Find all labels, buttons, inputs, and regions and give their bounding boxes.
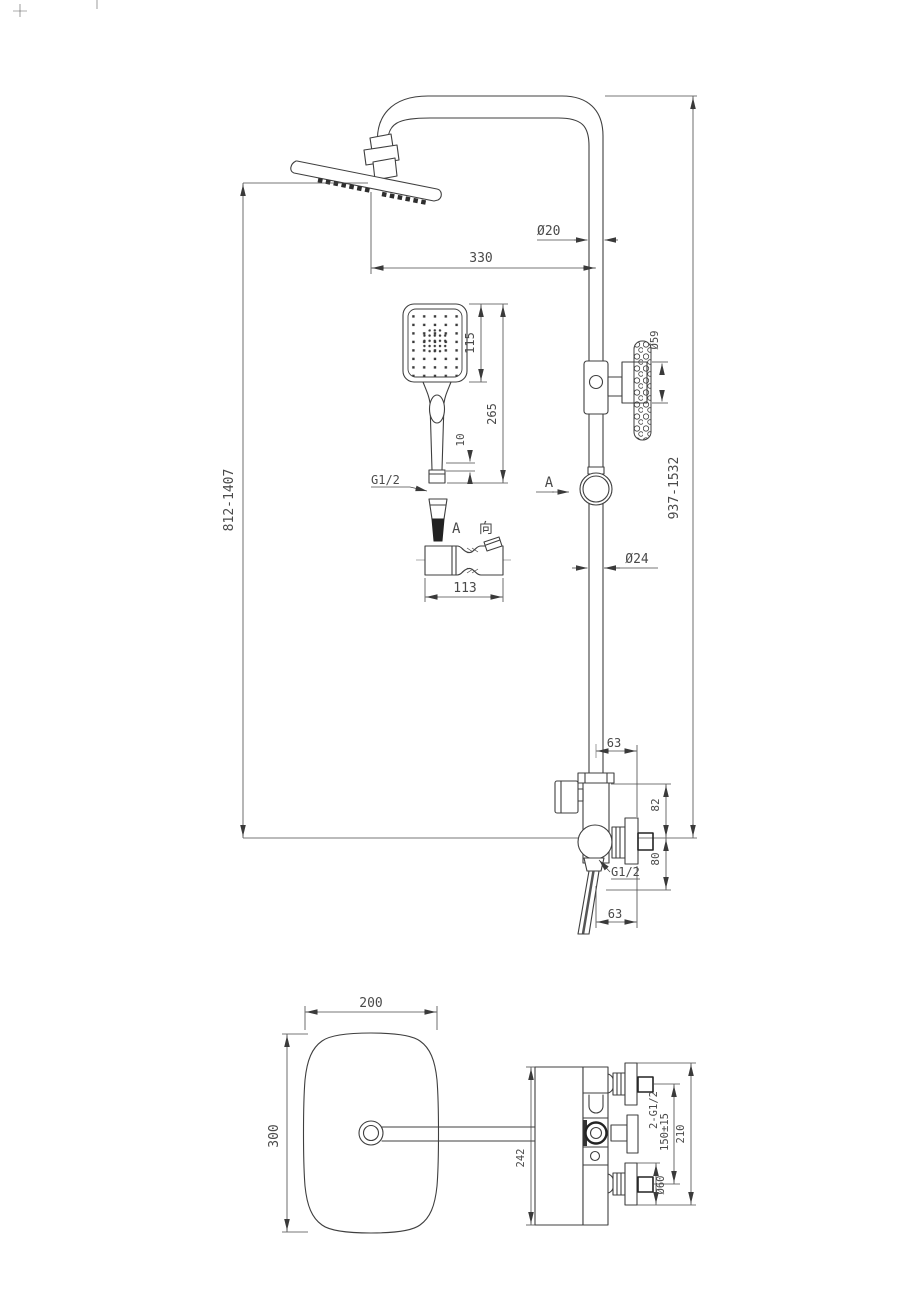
top-offset-label: 63 <box>607 736 621 750</box>
dim-body-span-242: 242 <box>515 1067 535 1225</box>
head-width-label: 200 <box>359 996 382 1011</box>
dim-knob-dia-59: Ø59 <box>649 331 668 403</box>
mixer-valve <box>555 773 653 934</box>
lower-height-label: 80 <box>649 852 662 865</box>
head-depth-label: 300 <box>267 1124 282 1147</box>
hand-shower <box>403 304 467 483</box>
height-range-right-label: 937-1532 <box>667 457 682 520</box>
view-a-marker: A <box>536 475 569 492</box>
dim-hand-nut-10: 10 <box>446 433 475 482</box>
riser-pipe <box>589 136 603 773</box>
dim-head-width-200: 200 <box>305 996 437 1030</box>
dim-pipe-dia-20: Ø20 <box>537 224 618 240</box>
hand-total-len-label: 265 <box>485 403 499 425</box>
plan-mixer-body <box>535 1063 653 1225</box>
dim-head-depth-300: 300 <box>267 1034 308 1232</box>
plan-inlet-top <box>608 1063 653 1105</box>
diverter-knob <box>584 341 651 440</box>
dim-height-left: 812-1407 <box>222 183 368 838</box>
front-view: 812-1407 937-1532 Ø20 330 <box>222 96 697 934</box>
hand-nut-len-label: 10 <box>454 433 467 446</box>
shower-arm <box>377 96 603 148</box>
plan-view: 200 300 <box>267 996 696 1233</box>
knob-dia-label: Ø59 <box>649 331 661 350</box>
hand-head-len-label: 115 <box>463 332 477 354</box>
dim-pipe-dia-24: Ø24 <box>572 552 658 568</box>
bracket-width-label: 113 <box>453 581 476 596</box>
hand-thread-label: G1/2 <box>371 473 400 487</box>
dim-arm-reach-330: 330 <box>371 192 596 274</box>
rain-shower-head <box>291 134 441 203</box>
dim-flange-dia-60: Ø60 <box>637 1163 667 1205</box>
detail-title: A 向 <box>452 521 498 537</box>
slider-holder <box>580 467 612 505</box>
view-a-label: A <box>545 475 554 491</box>
plan-inlet-bottom <box>608 1163 653 1205</box>
overall-span-label: 210 <box>675 1125 687 1144</box>
wall-mount <box>612 818 653 864</box>
outlet-thread-label: G1/2 <box>611 865 640 879</box>
shower-system-technical-drawing: 812-1407 937-1532 Ø20 330 <box>0 0 919 1300</box>
inlet-spacing-label: 150±15 <box>659 1113 671 1151</box>
height-range-left-label: 812-1407 <box>222 469 237 532</box>
dim-height-right: 937-1532 <box>605 96 697 838</box>
flange-dia-label: Ø60 <box>655 1176 667 1195</box>
body-span-label: 242 <box>515 1149 527 1168</box>
bottom-offset-label: 63 <box>608 907 622 921</box>
dim-bracket-113: 113 <box>425 578 503 602</box>
page-frame-marks <box>13 0 97 17</box>
arm-reach-label: 330 <box>469 251 492 266</box>
dim-hand-thread: G1/2 <box>371 473 427 491</box>
pipe-dia-20-label: Ø20 <box>537 224 560 239</box>
pipe-dia-24-label: Ø24 <box>625 552 649 567</box>
upper-height-label: 82 <box>649 798 662 811</box>
hose-connector <box>429 499 447 541</box>
dim-hand-head-115: 115 <box>463 304 508 382</box>
wall-bracket-detail: A 向 <box>416 521 511 575</box>
